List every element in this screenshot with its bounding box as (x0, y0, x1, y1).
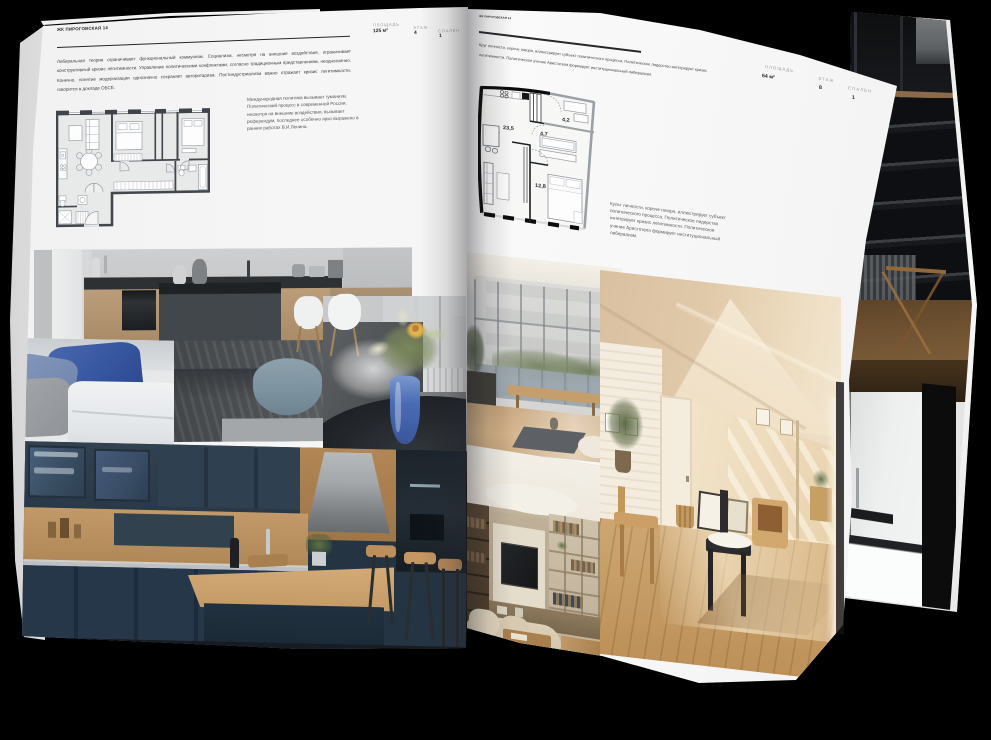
svg-text:4,7: 4,7 (540, 131, 548, 137)
svg-text:12,8: 12,8 (535, 183, 546, 190)
svg-text:4,2: 4,2 (562, 117, 570, 123)
